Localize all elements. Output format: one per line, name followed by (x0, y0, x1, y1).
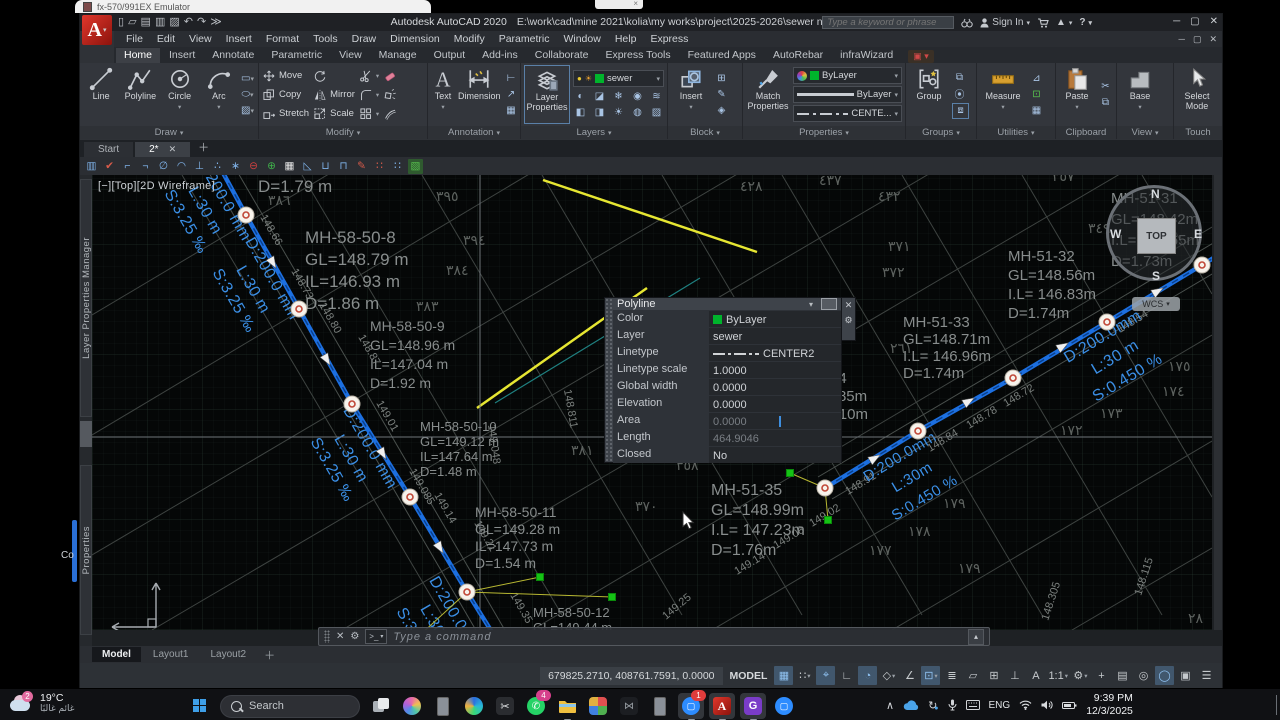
layer-tools-row2[interactable]: ◧◨☀◍▨ (573, 105, 664, 119)
new-tab-button[interactable]: ＋ (192, 139, 215, 157)
qp-value[interactable]: 0.0000 (709, 396, 841, 412)
autocad-window: Autodesk AutoCAD 2020E:\work\cad\mine 20… (80, 14, 1222, 688)
panel-annotation: AText▾ Dimension ⊢ ↗ ▦ Annotation▾ (428, 63, 521, 139)
onedrive-icon[interactable] (903, 700, 919, 711)
app-badge: 1 (691, 690, 706, 701)
green-grip[interactable] (537, 574, 544, 581)
arc-button[interactable]: Arc▾ (201, 65, 237, 124)
doc-close-button[interactable]: ✕ (1209, 31, 1217, 47)
palette-handle[interactable] (80, 421, 92, 447)
autodesk-apps-icon[interactable]: ▲▾ (1056, 17, 1072, 28)
table-icon[interactable]: ▦ (504, 104, 519, 118)
explode-button[interactable] (383, 85, 397, 104)
stretch-button[interactable]: Stretch (262, 104, 309, 123)
qp-value[interactable]: ByLayer (709, 311, 841, 327)
toolbar-icon-16[interactable]: ∷ (372, 159, 387, 174)
panel-view: Base▾ View▾ (1117, 63, 1174, 139)
toolbar-icon-8[interactable]: ∗ (228, 159, 243, 174)
ribbon-tab-add-ins[interactable]: Add-ins (474, 48, 526, 63)
qp-color-swatch (713, 315, 722, 324)
qp-value[interactable]: sewer (709, 328, 841, 344)
taskbar-app-device[interactable] (647, 693, 673, 719)
dimension-button[interactable]: Dimension (458, 65, 501, 124)
menu-tools[interactable]: Tools (307, 32, 344, 46)
view-panel-title[interactable]: View▾ (1117, 126, 1173, 139)
offset-button[interactable] (383, 104, 397, 123)
qp-value[interactable]: 1.0000 (709, 362, 841, 378)
canvas-scrollbar[interactable] (1214, 175, 1222, 630)
annotation-panel-title[interactable]: Annotation▾ (428, 126, 520, 139)
command-line[interactable]: ✕ ⚙ >_▾ Type a command ▴ (318, 627, 990, 646)
show-desktop-button[interactable] (1276, 695, 1277, 715)
toolbar-icon-0[interactable]: ▥ (84, 159, 99, 174)
elevation-label: 148.78 (964, 404, 999, 432)
qp-value[interactable]: No (709, 447, 841, 463)
qat-new-icon[interactable]: ▯ (118, 15, 124, 30)
help-icon[interactable]: ?▾ (1079, 17, 1092, 28)
qp-label: Elevation (613, 396, 709, 412)
background-window-close[interactable]: × (595, 0, 643, 9)
cmd-prompt-text[interactable]: Type a command (393, 631, 491, 643)
hatch-tool-icon[interactable]: ▨ ▾ (240, 104, 255, 118)
menu-draw[interactable]: Draw (346, 32, 383, 46)
toolbar-icon-14[interactable]: ⊓ (336, 159, 351, 174)
ribbon-tab-express-tools[interactable]: Express Tools (597, 48, 678, 63)
move-button[interactable]: Move (262, 66, 309, 85)
object-list-icon[interactable] (821, 298, 837, 310)
create-block-icon[interactable]: ⊞ (714, 72, 729, 86)
qp-row-layer[interactable]: Layersewer (613, 327, 841, 344)
circle-button[interactable]: Circle▾ (162, 65, 198, 124)
scale-button[interactable]: Scale (313, 104, 355, 123)
taskbar-app-zoom[interactable]: ▢1 (678, 693, 704, 719)
qp-close-icon[interactable]: ✕ (845, 300, 853, 311)
copy-clip-icon[interactable]: ⧉ (1098, 96, 1113, 110)
group-edit-icon[interactable]: ⦿ (952, 87, 967, 101)
toolbar-icon-17[interactable]: ∷ (390, 159, 405, 174)
ribbon-tab-output[interactable]: Output (426, 48, 474, 63)
ribbon-tab-featured-apps[interactable]: Featured Apps (680, 48, 764, 63)
menu-edit[interactable]: Edit (151, 32, 181, 46)
parcel-number: ٣٩٤ (463, 233, 486, 249)
infocenter-search-input[interactable] (822, 16, 954, 29)
status-dynamic-input[interactable]: ⌖ (816, 666, 835, 685)
menu-help[interactable]: Help (609, 32, 643, 46)
toolbar-icon-4[interactable]: ∅ (156, 159, 171, 174)
toolbar-icon-13[interactable]: ⊔ (318, 159, 333, 174)
window-maximize-button[interactable]: ▢ (1190, 14, 1199, 30)
background-window-titlebar[interactable]: fx-570/991EX Emulator (75, 0, 431, 13)
manhole-label: D=1.74m (903, 365, 964, 382)
cmd-grip[interactable] (324, 630, 330, 643)
manhole-grip[interactable] (402, 489, 418, 505)
manhole-label: MH-58-50-9 (370, 318, 445, 334)
leader-icon[interactable]: ↗ (504, 88, 519, 102)
window-minimize-button[interactable]: ─ (1173, 14, 1180, 30)
window-close-button[interactable]: ✕ (1210, 14, 1218, 30)
model-space-label[interactable]: MODEL (730, 670, 768, 682)
group-selection-icon[interactable]: ⧈ (952, 103, 969, 119)
cmd-history-icon[interactable]: ▴ (968, 629, 984, 645)
qp-value[interactable]: CENTER2 (709, 345, 841, 361)
tab-start[interactable]: Start (84, 142, 133, 157)
manhole-grip[interactable] (291, 301, 307, 317)
menu-file[interactable]: File (120, 32, 149, 46)
copy-button[interactable]: Copy (262, 85, 309, 104)
linear-dim-icon[interactable]: ⊢ (504, 72, 519, 86)
coordinates-readout: 679825.2710, 408761.7591, 0.0000 (540, 667, 722, 685)
ribbon-tab-autorebar[interactable]: AutoRebar (765, 48, 831, 63)
qp-row-closed[interactable]: ClosedNo (613, 446, 841, 463)
manhole-label: D=1.86 m (305, 294, 379, 313)
quick-select-icon[interactable]: ⊿ (1029, 72, 1044, 86)
cmd-close-icon[interactable]: ✕ (336, 631, 344, 642)
volume-icon[interactable] (1041, 700, 1053, 710)
viewport-view: [Top] (111, 180, 136, 192)
doc-minimize-button[interactable]: ─ (1179, 31, 1185, 47)
cmd-prompt-icon[interactable]: >_▾ (365, 629, 387, 644)
binoculars-search-icon[interactable] (961, 18, 973, 28)
taskbar-app-dark-app[interactable]: ⋈ (616, 693, 642, 719)
update-sync-icon[interactable]: ↻● (928, 699, 938, 712)
taskbar-app-copilot[interactable] (399, 693, 425, 719)
layer-tools-row1[interactable]: ◐◪❄◉≋ (573, 89, 664, 103)
qp-label: Layer (613, 328, 709, 344)
manhole-label: MH-58-50-10 (420, 419, 497, 434)
manhole-grip[interactable] (459, 584, 475, 600)
dropdown-caret: ▾ (807, 672, 810, 680)
emulator-title: fx-570/991EX Emulator (97, 2, 190, 12)
rotate-button[interactable] (313, 66, 355, 85)
toolbar-icon-2[interactable]: ⌐ (120, 159, 135, 174)
viewcube-top-face[interactable]: TOP (1137, 218, 1176, 254)
weather-widget[interactable]: 2 19°C غائم غالبًا (8, 692, 74, 714)
menu-window[interactable]: Window (557, 32, 606, 46)
match-properties-button[interactable]: Match Properties (746, 65, 790, 124)
dropdown-caret: ▾ (934, 672, 937, 680)
qp-value-text: sewer (713, 331, 742, 343)
qat-plot-icon[interactable]: ▨ (169, 15, 179, 30)
viewcube-east[interactable]: E (1194, 227, 1202, 241)
panel-properties: Match Properties ByLayer▾ ByLayer▾ CENTE… (743, 63, 906, 139)
status-graphics-performance[interactable]: ◯ (1155, 666, 1174, 685)
block-panel-title[interactable]: Block▾ (668, 126, 742, 139)
layout-tab-model[interactable]: Model (92, 647, 141, 662)
green-grip[interactable] (825, 517, 832, 524)
taskbar-app-snipping-tool[interactable]: ✂ (492, 693, 518, 719)
viewcube-north[interactable]: N (1151, 187, 1160, 201)
block-attr-icon[interactable]: ◈ (714, 104, 729, 118)
menu-format[interactable]: Format (260, 32, 305, 46)
svg-text:A: A (436, 70, 451, 91)
menu-modify[interactable]: Modify (448, 32, 491, 46)
select-mode-button[interactable]: Select Mode (1177, 65, 1217, 124)
taskbar-app-photos[interactable] (585, 693, 611, 719)
taskbar-apps: ✂✆4⋈▢1AG▢ (368, 693, 797, 719)
tab-drawing-2[interactable]: 2*✕ (135, 142, 190, 157)
properties-palette-tab[interactable]: Properties (80, 465, 92, 635)
manhole-grip[interactable] (344, 396, 360, 412)
toolbar-icon-1[interactable]: ✔ (102, 159, 117, 174)
microphone-icon[interactable] (948, 699, 957, 711)
record-icon[interactable]: ▣ ▾ (908, 50, 934, 63)
parcel-number: ٣٧٠ (635, 499, 658, 515)
group-button[interactable]: Group (909, 65, 949, 124)
manhole-grip[interactable] (910, 423, 926, 439)
line-button[interactable]: Line (83, 65, 119, 124)
ribbon-tab-annotate[interactable]: Annotate (204, 48, 262, 63)
manhole-grip[interactable] (1005, 370, 1021, 386)
text-button[interactable]: AText▾ (431, 65, 455, 124)
status-units[interactable]: ▤ (1113, 666, 1132, 685)
viewport-controls[interactable]: [−][Top][2D Wireframe] (98, 180, 215, 192)
language-indicator[interactable]: ENG (989, 700, 1011, 711)
manhole-label: D=1.74m (1008, 305, 1069, 322)
parcel-number: ١٧٤ (1162, 384, 1185, 400)
ribbon-tab-manage[interactable]: Manage (371, 48, 425, 63)
toolbar-icon-15[interactable]: ✎ (354, 159, 369, 174)
qp-value[interactable]: 0.0000 (709, 413, 841, 429)
elevation-label: 149.14 (431, 491, 458, 526)
cmd-customize-icon[interactable]: ⚙ (350, 631, 359, 642)
layout-tab-layout2[interactable]: Layout2 (200, 647, 256, 662)
layer-dropdown[interactable]: ●☀ sewer▾ (573, 70, 664, 87)
elevation-label: 149.25 (660, 591, 693, 622)
status-selection-cycling[interactable]: ⊞ (984, 666, 1003, 685)
status-isolate-objects[interactable]: ◎ (1134, 666, 1153, 685)
app-store-cart-icon[interactable] (1037, 18, 1049, 28)
measure-button[interactable]: Measure▾ (980, 65, 1026, 124)
qp-row-elevation[interactable]: Elevation0.0000 (613, 395, 841, 412)
taskbar-app-file-explorer[interactable] (554, 693, 580, 719)
green-grip[interactable] (609, 594, 616, 601)
manhole-grip[interactable] (817, 480, 833, 496)
layout-tab-layout1[interactable]: Layout1 (143, 647, 199, 662)
polyline-button[interactable]: Polyline (122, 65, 158, 124)
utilities-panel-title[interactable]: Utilities▾ (977, 126, 1055, 139)
ungroup-icon[interactable]: ⧉ (952, 71, 967, 85)
parcel-number: ٣٥٧ (1052, 175, 1075, 185)
properties-panel-title[interactable]: Properties▾ (743, 126, 905, 139)
erase-button[interactable] (383, 66, 397, 85)
ribbon-tab-view[interactable]: View (331, 48, 370, 63)
rectangle-tool-icon[interactable]: ▭ ▾ (240, 72, 255, 86)
ribbon: Line Polyline Circle▾ Arc▾ ▭ ▾ ⬭ ▾ ▨ ▾ D… (80, 63, 1222, 139)
status-lineweight[interactable]: ≣ (942, 666, 961, 685)
toolbar-icon-5[interactable]: ◠ (174, 159, 189, 174)
toolbar-icon-10[interactable]: ⊕ (264, 159, 279, 174)
status-grid-display[interactable]: ▦ (774, 666, 793, 685)
toolbar-icon-18[interactable]: ▧ (408, 159, 423, 174)
parcel-number: ٤٣٧ (819, 175, 842, 189)
qp-value-text: CENTER2 (763, 348, 814, 360)
qp-row-color[interactable]: ColorByLayer (613, 310, 841, 327)
ribbon-tab-collaborate[interactable]: Collaborate (527, 48, 597, 63)
dropdown-caret: ▾ (1065, 672, 1068, 680)
viewcube[interactable]: TOP N S W E WCS▾ (1104, 183, 1208, 287)
mirror-button[interactable]: Mirror (313, 85, 355, 104)
palette-grip[interactable] (605, 298, 613, 462)
parcel-number: ٤٣٢ (878, 189, 901, 205)
dropdown-caret: ▾ (1084, 672, 1087, 680)
mouse-cursor (683, 512, 693, 529)
status-object-snap[interactable]: ⊡▾ (921, 666, 940, 685)
ellipse-tool-icon[interactable]: ⬭ ▾ (240, 88, 255, 102)
weather-temp: 19°C (40, 692, 74, 704)
color-wheel-icon (797, 71, 807, 81)
manhole-label: MH-58-50-12 (533, 605, 610, 620)
manhole-label: GL=148.99m (711, 502, 804, 519)
status-isodraft[interactable]: ◇▾ (879, 666, 898, 685)
qat-undo-icon[interactable]: ↶ (184, 15, 193, 30)
menu-insert[interactable]: Insert (220, 32, 258, 46)
point-icon[interactable]: ⊡ (1029, 88, 1044, 102)
status-ortho-mode[interactable]: ∟ (837, 666, 856, 685)
layers-panel-title[interactable]: Layers▾ (521, 126, 667, 139)
status-osnap-tracking[interactable]: ∠ (900, 666, 919, 685)
status-polar-tracking[interactable]: ◔ (858, 666, 877, 685)
manhole-label: IL=147.73 m (475, 538, 553, 554)
touch-keyboard-icon[interactable] (966, 700, 980, 710)
modify-panel-title[interactable]: Modify▾ (259, 126, 427, 139)
manhole-label: MH-51-35 (711, 482, 782, 499)
wcs-dropdown[interactable]: WCS▾ (1132, 297, 1180, 311)
status-customization-menu[interactable]: ☰ (1197, 666, 1216, 685)
status-annotation-add[interactable]: + (1092, 666, 1111, 685)
array-button[interactable]: ▾ (359, 104, 379, 123)
toolbar-icon-11[interactable]: ▦ (282, 159, 297, 174)
viewcube-west[interactable]: W (1110, 227, 1121, 241)
qat-open-icon[interactable]: ▱ (128, 15, 136, 30)
elevation-label: 148.305 (1039, 580, 1063, 622)
ribbon-tab-parametric[interactable]: Parametric (263, 48, 330, 63)
battery-pen-icon[interactable] (1062, 701, 1077, 710)
status-annotation-scale[interactable]: 1:1▾ (1047, 666, 1069, 685)
start-button[interactable] (188, 694, 212, 718)
cut-icon[interactable]: ✂ (1098, 80, 1113, 94)
taskbar-app-autocad[interactable]: A (709, 693, 735, 719)
toolbar-icon-9[interactable]: ⊖ (246, 159, 261, 174)
status-workspace-gear[interactable]: ⚙▾ (1071, 666, 1090, 685)
toolbar-icon-6[interactable]: ⊥ (192, 159, 207, 174)
qp-row-global-width[interactable]: Global width0.0000 (613, 378, 841, 395)
insert-button[interactable]: Insert▾ (671, 65, 711, 124)
linetype-dropdown[interactable]: CENTE...▾ (793, 105, 902, 122)
qp-row-length[interactable]: Length464.9046 (613, 429, 841, 446)
qp-options-icon[interactable]: ⚙ (844, 315, 852, 326)
qp-row-area[interactable]: Area0.0000 (613, 412, 841, 429)
ribbon-tab-infrawizard[interactable]: infraWizard (832, 48, 901, 63)
taskbar-app-whatsapp[interactable]: ✆4 (523, 693, 549, 719)
layer-properties-button[interactable]: Layer Properties (524, 65, 570, 124)
sign-in-button[interactable]: Sign In▾ (980, 17, 1030, 28)
qp-value[interactable]: 0.0000 (709, 379, 841, 395)
taskbar-app-zoom-meeting[interactable]: ▢ (771, 693, 797, 719)
paste-button[interactable]: Paste▾ (1059, 65, 1095, 124)
dropdown-caret: ▾ (892, 672, 895, 680)
parcel-number: ١٧٩ (943, 496, 966, 512)
toolbar-icon-3[interactable]: ¬ (138, 159, 153, 174)
taskbar-app-gpdf[interactable]: G (740, 693, 766, 719)
parcel-number: ٣٧٢ (882, 265, 905, 281)
parcel-number: ٣٧١ (888, 239, 911, 255)
qat-more-icon[interactable]: ≫ (210, 15, 222, 30)
qp-value[interactable]: 464.9046 (709, 430, 841, 446)
new-layout-button[interactable]: ＋ (258, 647, 281, 663)
groups-panel-title[interactable]: Groups▾ (906, 126, 976, 139)
status-annotation-visibility[interactable]: A (1026, 666, 1045, 685)
taskbar-app-task-view[interactable] (368, 693, 394, 719)
ribbon-tab-home[interactable]: Home (116, 48, 160, 63)
elevation-label: 148.72 (1001, 382, 1036, 410)
trim-button[interactable]: ▾ (359, 66, 379, 85)
qat-save-as-icon[interactable]: ▥ (155, 15, 165, 30)
status-snap-mode[interactable]: ∷▾ (795, 666, 814, 685)
qp-row-linetype-scale[interactable]: Linetype scale1.0000 (613, 361, 841, 378)
search-icon (231, 701, 242, 712)
qat-redo-icon[interactable]: ↷ (197, 15, 206, 30)
doc-restore-button[interactable]: ▢ (1193, 31, 1202, 47)
weather-icon: 2 (8, 694, 34, 712)
ribbon-tab-insert[interactable]: Insert (161, 48, 203, 63)
qp-row-linetype[interactable]: LinetypeCENTER2 (613, 344, 841, 361)
menu-dimension[interactable]: Dimension (384, 32, 446, 46)
layer-properties-manager-tab[interactable]: Layer Properties Manager (80, 179, 92, 417)
parcel-number: ٣٨٤ (446, 263, 469, 279)
menu-express[interactable]: Express (644, 32, 694, 46)
object-color-dropdown[interactable]: ByLayer▾ (793, 67, 902, 84)
lineweight-dropdown[interactable]: ByLayer▾ (793, 86, 902, 103)
menu-view[interactable]: View (183, 32, 218, 46)
green-grip[interactable] (787, 470, 794, 477)
base-button[interactable]: Base▾ (1120, 65, 1160, 124)
drawing-canvas[interactable]: ٣٨٦٣٩٥٣٩٤٣٨٤٣٨٣٣٨١٣٧٠٣٥٨٣٧١٣٧٢٣٤٩٣٥٧١٧٥١… (92, 175, 1212, 630)
system-tray: ∧ ↻● ENG 9:39 PM12/3/2025 (886, 689, 1133, 720)
qp-label: Global width (613, 379, 709, 395)
status-clean-screen[interactable]: ▣ (1176, 666, 1195, 685)
fillet-button[interactable]: ▾ (359, 85, 379, 104)
object-type-dropdown[interactable]: Polyline▾ (613, 298, 841, 310)
manhole-label: I.L= 147.23m (711, 522, 805, 539)
qat-save-icon[interactable]: ▤ (141, 15, 151, 30)
calculator-icon[interactable]: ▦ (1029, 104, 1044, 118)
close-tab-icon[interactable]: ✕ (169, 144, 177, 155)
manhole-label: MH-51-32 (1008, 248, 1075, 265)
toolbar-icon-12[interactable]: ◺ (300, 159, 315, 174)
titlebar: Autodesk AutoCAD 2020E:\work\cad\mine 20… (80, 14, 1222, 31)
edit-block-icon[interactable]: ✎ (714, 88, 729, 102)
application-menu-button[interactable]: A▾ (82, 15, 112, 45)
taskbar-app-phone-link[interactable] (430, 693, 456, 719)
parcel-number: ٢٨ (1188, 611, 1204, 627)
manhole-grip[interactable] (1099, 314, 1115, 330)
menu-parametric[interactable]: Parametric (493, 32, 556, 46)
tray-chevron-icon[interactable]: ∧ (886, 699, 894, 712)
draw-panel-title[interactable]: Draw▾ (80, 126, 258, 139)
toolbar-icon-7[interactable]: ∴ (210, 159, 225, 174)
viewcube-south[interactable]: S (1152, 269, 1160, 283)
taskbar-app-browser[interactable] (461, 693, 487, 719)
manhole-label: IL=147.64 m (420, 449, 493, 464)
wifi-icon[interactable] (1019, 700, 1032, 710)
taskbar-search[interactable]: Search (220, 695, 360, 718)
quick-access-toolbar: ▯▱▤▥▨↶↷≫ (118, 15, 222, 30)
menu-bar: FileEditViewInsertFormatToolsDrawDimensi… (114, 31, 1222, 47)
status-transparency[interactable]: ▱ (963, 666, 982, 685)
manhole-grip[interactable] (238, 207, 254, 223)
taskbar-clock[interactable]: 9:39 PM12/3/2025 (1086, 692, 1133, 718)
status-3d-osnap[interactable]: ⊥ (1005, 666, 1024, 685)
